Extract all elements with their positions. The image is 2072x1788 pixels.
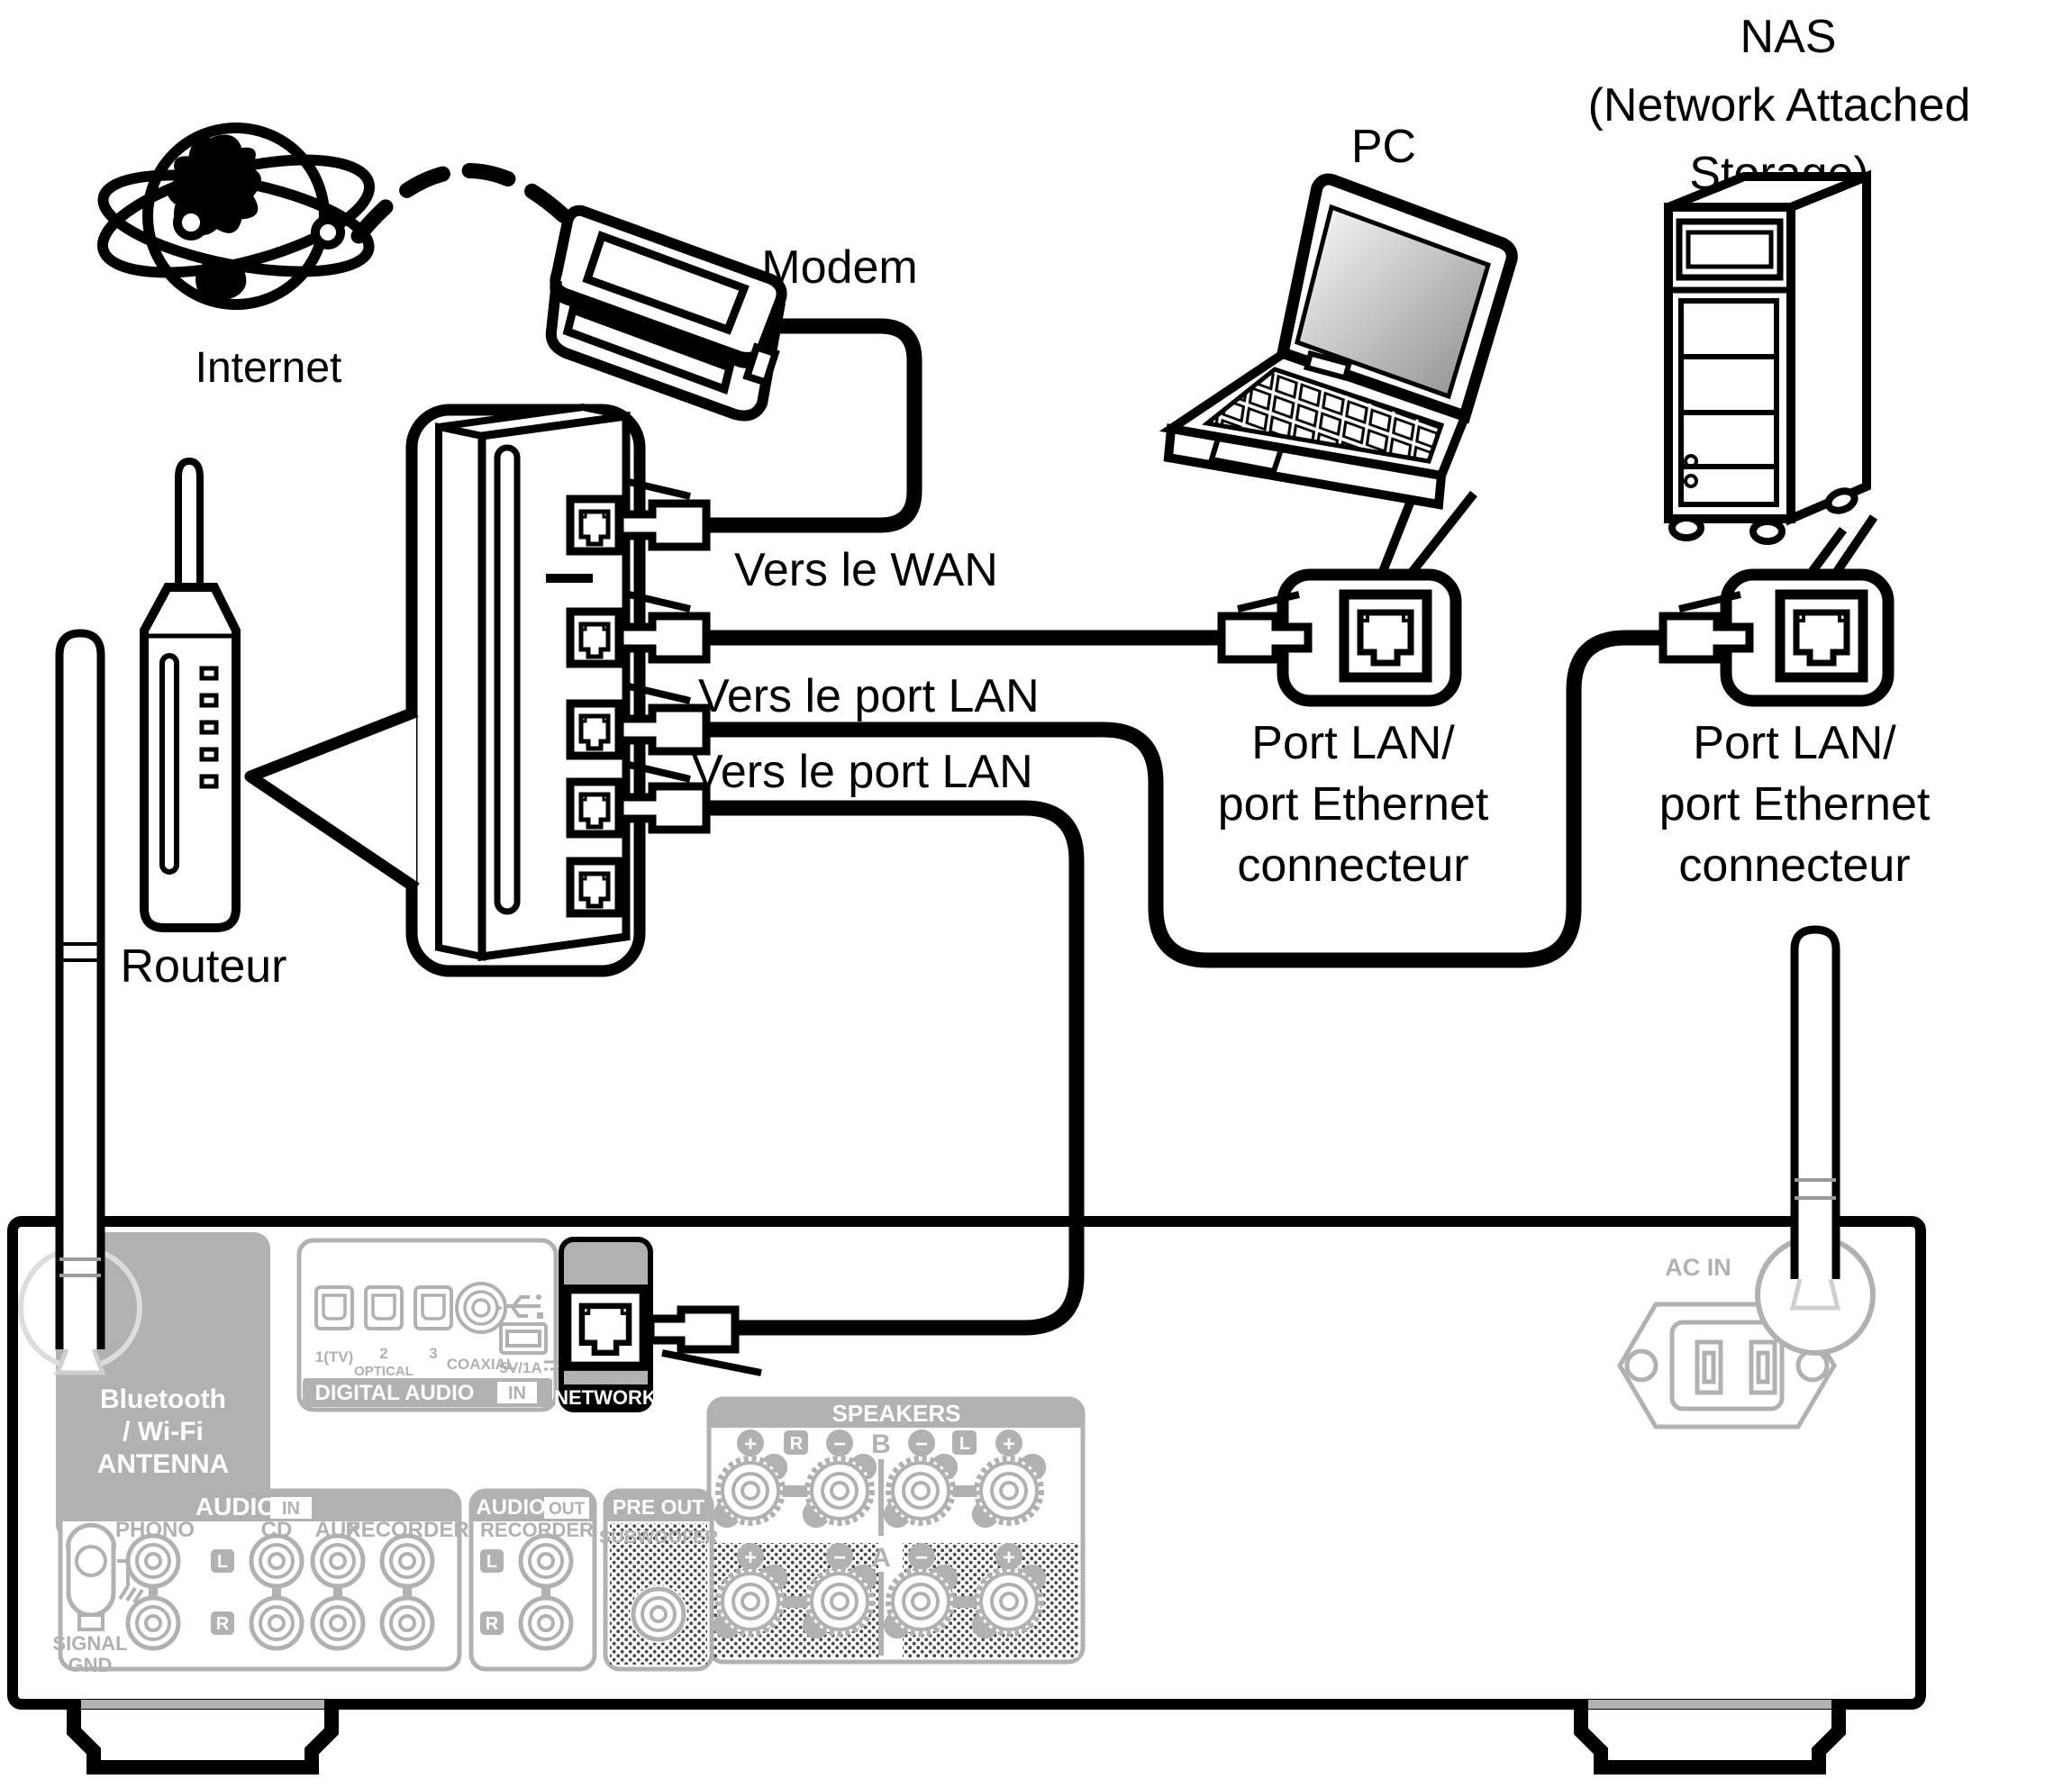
router-panel-side [439,427,482,957]
svg-text:+: + [744,1546,757,1570]
svg-text:R: R [486,1614,499,1634]
subwoofer-label: SUBWOOFER [599,1528,719,1547]
svg-text:OUT: OUT [549,1500,586,1519]
network-port-section: NETWORK [554,1239,657,1410]
modem-port [747,347,775,382]
svg-text:+: + [1003,1546,1015,1570]
modem [551,211,782,416]
optical-port-1 [316,1287,352,1329]
svg-text:B: B [871,1429,891,1459]
svg-text:−: − [915,1432,928,1457]
digital-audio-title: DIGITAL AUDIO [315,1381,475,1405]
nas-port-text-2: port Ethernet [1659,778,1931,830]
nas-label-2: (Network Attached [1588,79,1971,132]
audio-out-title: AUDIO [476,1495,545,1520]
router-body [144,587,236,928]
bt-line2: / Wi-Fi [123,1417,204,1447]
wireless-dashed-link [359,170,586,238]
subwoofer-jack [633,1589,684,1639]
svg-text:OPTICAL: OPTICAL [354,1364,413,1379]
router-panel-vent [497,448,517,912]
right-antenna [1758,930,1873,1353]
svg-text:R: R [216,1614,230,1634]
router-port-wan [570,499,619,551]
svg-text:IN: IN [282,1499,300,1519]
speakers-section: SPEAKERS + R − B − L + + − A [708,1399,1083,1662]
pc-rj45-jack [1344,594,1427,677]
bt-line3: ANTENNA [97,1449,230,1479]
to-wan-label: Vers le WAN [734,544,998,596]
network-connection-diagram: Bluetooth / Wi-Fi ANTENNA DIGITAL AUDIO … [0,0,2072,1788]
svg-text:L: L [486,1552,497,1572]
nas-tower [1668,177,1867,541]
nas-port-text-3: connecteur [1678,840,1910,892]
bt-line1: Bluetooth [100,1384,226,1414]
svg-text:R: R [790,1434,804,1454]
network-rj45-jack [567,1289,644,1366]
router-antenna [178,461,200,585]
left-antenna [58,633,103,1373]
pc-port-text-1: Port LAN/ [1251,717,1455,769]
svg-text:−: − [833,1432,846,1457]
svg-text:A: A [871,1543,891,1573]
svg-text:L: L [959,1434,970,1454]
pc-label: PC [1351,121,1416,173]
svg-text:−: − [915,1546,928,1570]
nas-port-text-1: Port LAN/ [1693,717,1896,769]
digital-audio-section: DIGITAL AUDIO IN 1(TV) 2 OPTICAL 3 COAXI… [299,1240,560,1410]
optical-port-2 [366,1287,402,1329]
audio-out-section: AUDIO OUT RECORDER L R [471,1491,595,1669]
pc-port-text-3: connecteur [1237,840,1468,892]
router-device [144,461,236,928]
nas-foot-right [1753,522,1782,541]
nas-foot-left [1672,518,1701,538]
ac-in-label: AC IN [1665,1254,1731,1281]
svg-text:−: − [833,1546,846,1570]
svg-text:+: + [744,1432,757,1457]
receiver-foot-right [1581,1702,1839,1767]
router-port-lan3 [570,782,619,834]
svg-text:SIGNAL: SIGNAL [52,1632,127,1655]
pre-out-title: PRE OUT [613,1495,704,1519]
to-lan-label-2: Vers le port LAN [692,746,1033,798]
svg-text:IN: IN [508,1384,526,1403]
internet-label: Internet [195,344,342,392]
to-lan-label-1: Vers le port LAN [698,670,1040,722]
network-label: NETWORK [554,1386,657,1409]
diagram-canvas: Bluetooth / Wi-Fi ANTENNA DIGITAL AUDIO … [0,0,2072,1788]
router-slot [162,656,177,872]
pc-laptop [1168,179,1512,504]
receiver-foot-left [74,1702,332,1767]
svg-text:+: + [1003,1432,1015,1457]
pre-out-section: PRE OUT SUBWOOFER [599,1491,719,1669]
svg-text:2: 2 [379,1345,387,1362]
router-label: Routeur [121,940,287,993]
cables [694,326,1672,1328]
audio-in-title: AUDIO [195,1493,277,1520]
router-port-lan4 [570,861,619,913]
router-port-lan2 [570,703,619,756]
optical-port-3 [415,1287,451,1329]
internet-globe [92,128,380,304]
globe-satellite-left [177,209,204,236]
audio-in-section: AUDIO IN PHONO CD AUX RECORDER SIGNAL GN… [52,1491,468,1676]
pc-port-text-2: port Ethernet [1218,778,1489,830]
speakers-title: SPEAKERS [832,1400,960,1427]
usb-power-label: 5V/1A [499,1359,541,1376]
router-port-lan1 [570,612,619,664]
modem-label: Modem [761,241,917,294]
router-callout [250,407,640,971]
svg-text:L: L [217,1552,228,1572]
svg-text:1(TV): 1(TV) [315,1348,354,1366]
globe-satellite-right [315,220,341,245]
svg-text:3: 3 [429,1345,437,1362]
nas-rj45-jack [1780,594,1863,677]
nas-label-1: NAS [1740,11,1837,63]
nas-side [1791,177,1867,519]
svg-text:GND: GND [68,1654,113,1676]
